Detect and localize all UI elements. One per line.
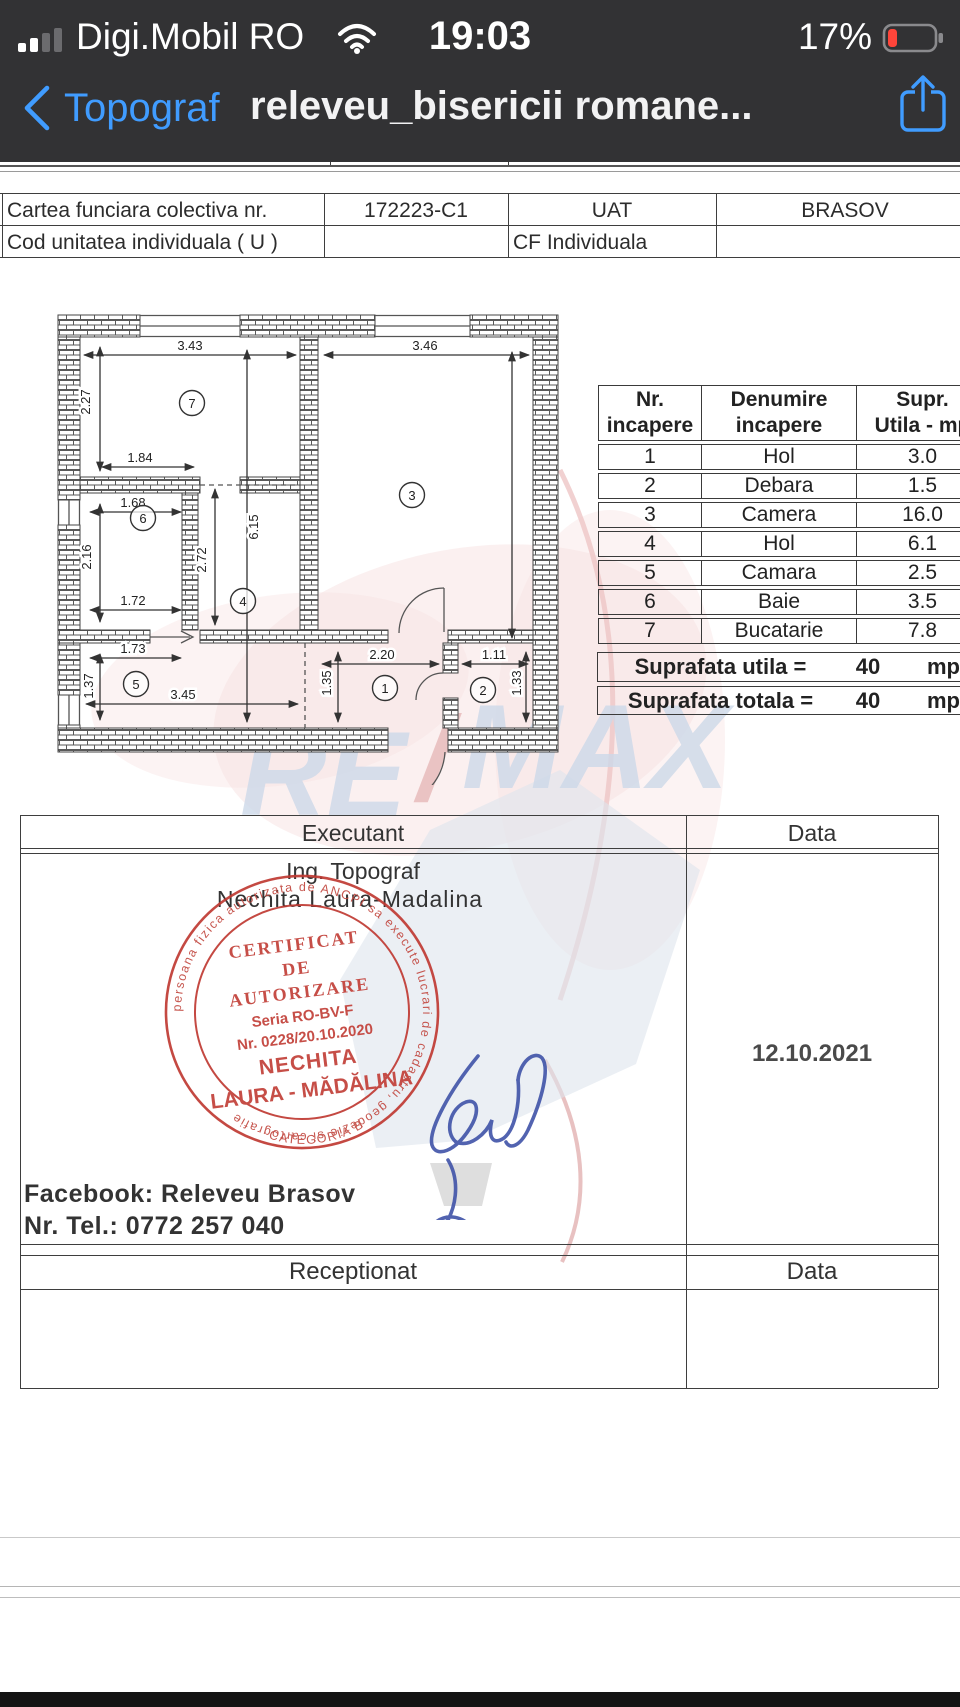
- room-table-row: 5Camara2.5: [598, 560, 960, 586]
- dimension-label: 1.37: [81, 673, 96, 698]
- room-area-cell: 2.5: [857, 561, 960, 585]
- total-value: 40: [843, 654, 893, 680]
- data-header-2: Data: [787, 1258, 838, 1286]
- border-line: [20, 1244, 938, 1245]
- room-number-cell: 3: [599, 503, 702, 527]
- dimension-label: 2.16: [79, 544, 94, 569]
- room-table-row: 3Camera16.0: [598, 502, 960, 528]
- dimension-label: 1.33: [509, 670, 524, 695]
- dimension-label: 1.72: [120, 593, 145, 608]
- room-number: 1: [381, 681, 388, 696]
- room-area-cell: 1.5: [857, 474, 960, 498]
- room-number: 5: [132, 677, 139, 692]
- room-number: 3: [408, 488, 415, 503]
- date-value: 12.10.2021: [752, 1040, 872, 1068]
- cf-label-1: Cartea funciara colectiva nr.: [7, 199, 267, 223]
- share-icon[interactable]: [898, 72, 948, 136]
- carrier-label: Digi.Mobil RO: [76, 16, 304, 58]
- dimension-label: 3.46: [412, 338, 437, 353]
- border-line: [20, 1289, 938, 1290]
- dimension-label: 1.35: [319, 670, 334, 695]
- border-line: [938, 815, 939, 1388]
- room-number-cell: 6: [599, 590, 702, 614]
- room-table-row: 4Hol6.1: [598, 531, 960, 557]
- signature: [428, 1055, 545, 1220]
- dimension-label: 3.45: [170, 687, 195, 702]
- dimension-label: 2.72: [194, 547, 209, 572]
- border-line: [20, 815, 21, 1388]
- stamp-line: CERTIFICAT: [227, 927, 360, 963]
- room-number: 6: [139, 511, 146, 526]
- cf-city: BRASOV: [801, 199, 889, 223]
- room-name-cell: Hol: [702, 532, 857, 556]
- border-line: [716, 193, 717, 257]
- dimension-label: 1.11: [482, 647, 506, 662]
- room-number: 2: [479, 683, 486, 698]
- col-header: incapere: [736, 413, 822, 439]
- room-table-header: Nr.incapere Denumireincapere Supr.Utila …: [598, 385, 960, 441]
- border-line: [0, 193, 960, 194]
- faint-line: [0, 1537, 960, 1538]
- border-line: [20, 815, 938, 816]
- phone-screen: Digi.Mobil RO 19:03 17% Topograf releveu…: [0, 0, 960, 1707]
- room-number-cell: 4: [599, 532, 702, 556]
- cf-individuala: CF Individuala: [513, 231, 647, 255]
- room-area-cell: 6.1: [857, 532, 960, 556]
- total-unit: mp: [927, 688, 960, 714]
- dimension-label: 2.20: [369, 647, 394, 662]
- battery-percent: 17%: [798, 16, 872, 58]
- col-header: Denumire: [731, 387, 828, 413]
- room-name-cell: Hol: [702, 445, 857, 469]
- total-value: 40: [843, 688, 893, 714]
- border-line: [0, 171, 960, 172]
- cf-number: 172223-C1: [364, 199, 468, 223]
- back-button-label[interactable]: Topograf: [64, 86, 220, 131]
- total-totala-row: Suprafata totala = 40 mp: [597, 686, 960, 715]
- room-table-row: 2Debara1.5: [598, 473, 960, 499]
- faint-line: [0, 1597, 960, 1598]
- document-title: releveu_bisericii romane...: [250, 84, 752, 129]
- dimension-label: 2.27: [78, 389, 93, 414]
- total-label: Suprafata totala =: [598, 688, 843, 714]
- faint-line: [0, 1586, 960, 1587]
- border-line: [20, 1388, 938, 1389]
- floorplan-drawing: 3.433.462.271.846.152.721.682.161.721.73…: [40, 285, 560, 785]
- receptionat-header: Receptionat: [289, 1258, 417, 1286]
- room-number-cell: 2: [599, 474, 702, 498]
- dimension-label: 6.15: [246, 514, 261, 539]
- data-header: Data: [788, 820, 837, 847]
- room-name-cell: Camara: [702, 561, 857, 585]
- border-line: [20, 1255, 938, 1256]
- border-line: [0, 257, 960, 258]
- border-line: [508, 193, 509, 257]
- cell-signal-icon: [18, 26, 64, 52]
- border-line: [0, 165, 960, 167]
- border-line: [0, 225, 960, 226]
- dimension-label: 3.43: [177, 338, 202, 353]
- cf-uat: UAT: [592, 199, 632, 223]
- border-line: [324, 193, 325, 257]
- room-name-cell: Debara: [702, 474, 857, 498]
- room-number-cell: 7: [599, 619, 702, 643]
- room-area-cell: 16.0: [857, 503, 960, 527]
- room-area-cell: 3.5: [857, 590, 960, 614]
- back-chevron-icon[interactable]: [20, 84, 52, 132]
- top-bars: Digi.Mobil RO 19:03 17% Topograf releveu…: [0, 0, 960, 162]
- dimension-label: 1.84: [127, 450, 152, 465]
- col-header: Nr.: [636, 387, 664, 413]
- room-number: 7: [188, 396, 195, 411]
- cf-label-2: Cod unitatea individuala ( U ): [7, 231, 278, 255]
- border-line: [2, 193, 3, 257]
- room-number: 4: [239, 594, 246, 609]
- room-area-cell: 3.0: [857, 445, 960, 469]
- room-number-cell: 5: [599, 561, 702, 585]
- room-name-cell: Bucatarie: [702, 619, 857, 643]
- total-utila-row: Suprafata utila = 40 mp: [597, 652, 960, 682]
- room-number-cell: 1: [599, 445, 702, 469]
- room-table-row: 1Hol3.0: [598, 444, 960, 470]
- stamp-line: DE: [281, 957, 312, 980]
- bottom-black-bar: [0, 1692, 960, 1707]
- border-line: [686, 815, 687, 1388]
- room-name-cell: Baie: [702, 590, 857, 614]
- battery-icon: [882, 22, 946, 54]
- total-label: Suprafata utila =: [598, 654, 843, 680]
- room-area-cell: 7.8: [857, 619, 960, 643]
- room-table-row: 6Baie3.5: [598, 589, 960, 615]
- col-header: Supr.: [896, 387, 949, 413]
- room-name-cell: Camera: [702, 503, 857, 527]
- certification-stamp: persoana fizica autorizata de ANCPI sa e…: [140, 830, 560, 1220]
- clock: 19:03: [429, 14, 531, 59]
- col-header: incapere: [607, 413, 693, 439]
- col-header: Utila - mp: [875, 413, 960, 439]
- room-table-row: 7Bucatarie7.8: [598, 618, 960, 644]
- total-unit: mp: [927, 654, 960, 680]
- dimension-label: 1.73: [120, 641, 145, 656]
- wifi-icon: [336, 22, 378, 54]
